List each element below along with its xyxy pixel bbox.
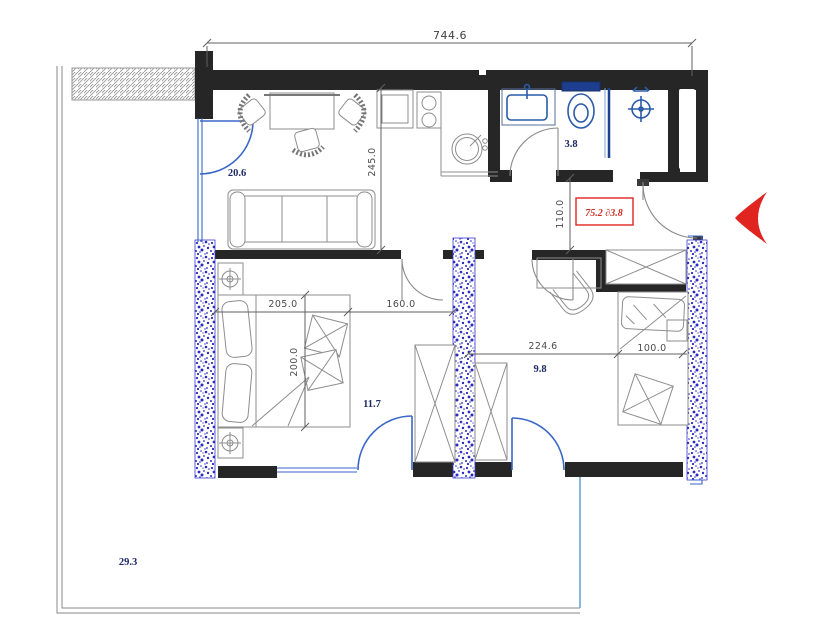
shaft-niche	[679, 89, 695, 169]
dim-bedroom2-width: 224.6	[528, 341, 557, 352]
toilet-bowl-inner	[574, 104, 588, 122]
tub-chair	[550, 271, 598, 320]
pillow	[621, 296, 685, 331]
column-cap	[690, 480, 702, 484]
dim-entry-recess: 110.0	[555, 199, 566, 228]
bathroom-door-arc	[510, 128, 558, 176]
bedroom1-door-arc	[402, 259, 443, 300]
dimension-overall: 744.6	[203, 29, 696, 76]
terrace-door-arc	[358, 416, 412, 470]
dining-set	[237, 93, 367, 155]
bathroom-fixtures	[502, 82, 654, 158]
room-label-bedroom1: 11.7	[363, 399, 381, 410]
pillow	[221, 300, 253, 358]
chair	[294, 127, 320, 152]
tap	[483, 139, 488, 144]
column-right	[687, 240, 707, 480]
dim-bedroom1-depth: 200.0	[289, 347, 300, 376]
neighbor-wall-hatch	[72, 68, 195, 100]
cushion	[301, 350, 343, 391]
desk	[537, 258, 601, 288]
dim-living-depth: 245.0	[367, 147, 378, 176]
room-label-bedroom2: 9.8	[533, 364, 546, 375]
column-left	[195, 240, 215, 478]
dining-table	[270, 93, 334, 129]
dimension-entry: 110.0	[555, 174, 574, 254]
area-stamp: 75.2 ∂3.8	[576, 198, 633, 225]
terrace-door-arc	[512, 418, 564, 470]
floor-plan-canvas: 744.6 245.0 110.0 205.0 160.0 200.0 224.…	[0, 0, 818, 631]
toilet-cistern	[562, 82, 600, 91]
room-label-terrace: 29.3	[119, 557, 137, 568]
floor-plan-page: 744.6 245.0 110.0 205.0 160.0 200.0 224.…	[0, 0, 818, 631]
dim-bedroom1-width: 205.0	[268, 299, 297, 310]
area-stamp-label: 75.2 ∂3.8	[585, 208, 622, 219]
bedroom2-door-arc	[532, 259, 573, 300]
kitchen	[377, 90, 498, 176]
entrance-door-arc	[643, 184, 697, 238]
entrance-arrow-icon	[735, 192, 767, 244]
pillow	[222, 363, 253, 423]
room-label-bathroom: 3.8	[564, 139, 577, 150]
sofa	[228, 190, 375, 249]
room-label-living: 20.6	[228, 168, 246, 179]
dim-overall-width: 744.6	[433, 29, 467, 42]
bedroom1-furniture	[218, 263, 350, 458]
toilet-bowl	[568, 94, 594, 128]
tap	[483, 146, 488, 151]
dim-passage-width: 160.0	[386, 299, 415, 310]
dim-bed-width: 100.0	[637, 343, 666, 354]
